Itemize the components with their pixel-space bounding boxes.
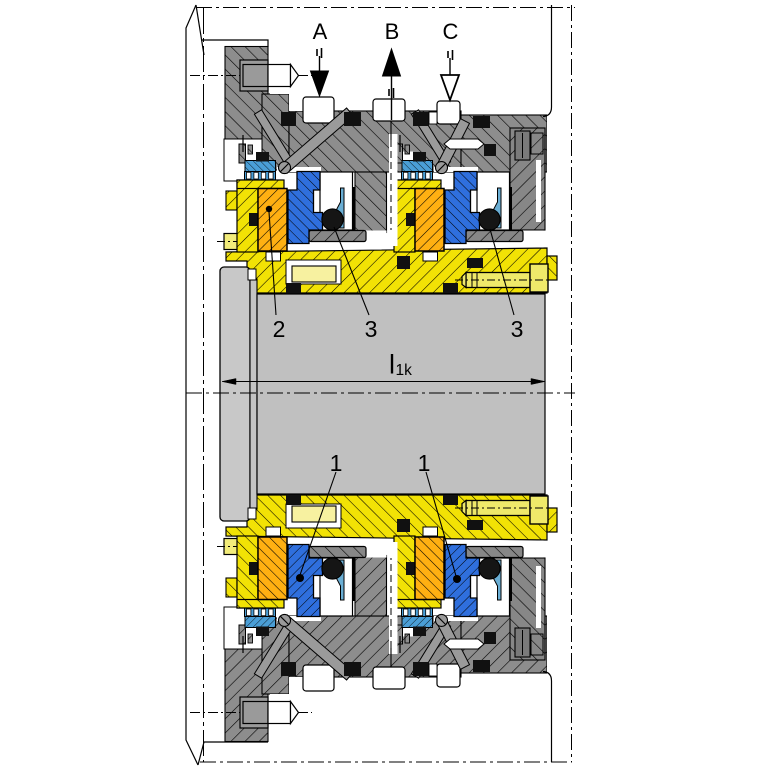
- svg-text:3: 3: [511, 316, 524, 342]
- svg-text:3: 3: [365, 316, 378, 342]
- svg-text:l: l: [389, 350, 395, 380]
- svg-text:B: B: [385, 19, 400, 44]
- svg-text:1: 1: [418, 450, 431, 476]
- svg-text:C: C: [443, 19, 459, 44]
- svg-text:1: 1: [330, 450, 343, 476]
- svg-text:2: 2: [273, 316, 286, 342]
- svg-text:A: A: [313, 19, 328, 44]
- svg-text:1k: 1k: [396, 362, 413, 379]
